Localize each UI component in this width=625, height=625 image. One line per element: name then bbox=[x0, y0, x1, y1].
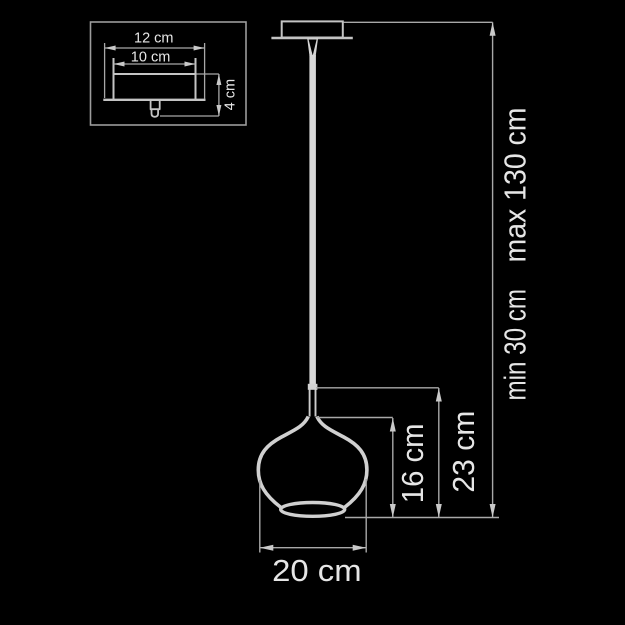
svg-text:20 cm: 20 cm bbox=[272, 553, 362, 588]
svg-text:10 cm: 10 cm bbox=[131, 49, 171, 65]
svg-text:12 cm: 12 cm bbox=[134, 31, 174, 47]
svg-text:max 130 cm: max 130 cm bbox=[498, 108, 533, 263]
svg-text:min 30 cm: min 30 cm bbox=[498, 289, 533, 401]
svg-text:23 cm: 23 cm bbox=[446, 411, 481, 493]
svg-text:4 cm: 4 cm bbox=[222, 79, 238, 110]
svg-text:16 cm: 16 cm bbox=[395, 423, 430, 503]
